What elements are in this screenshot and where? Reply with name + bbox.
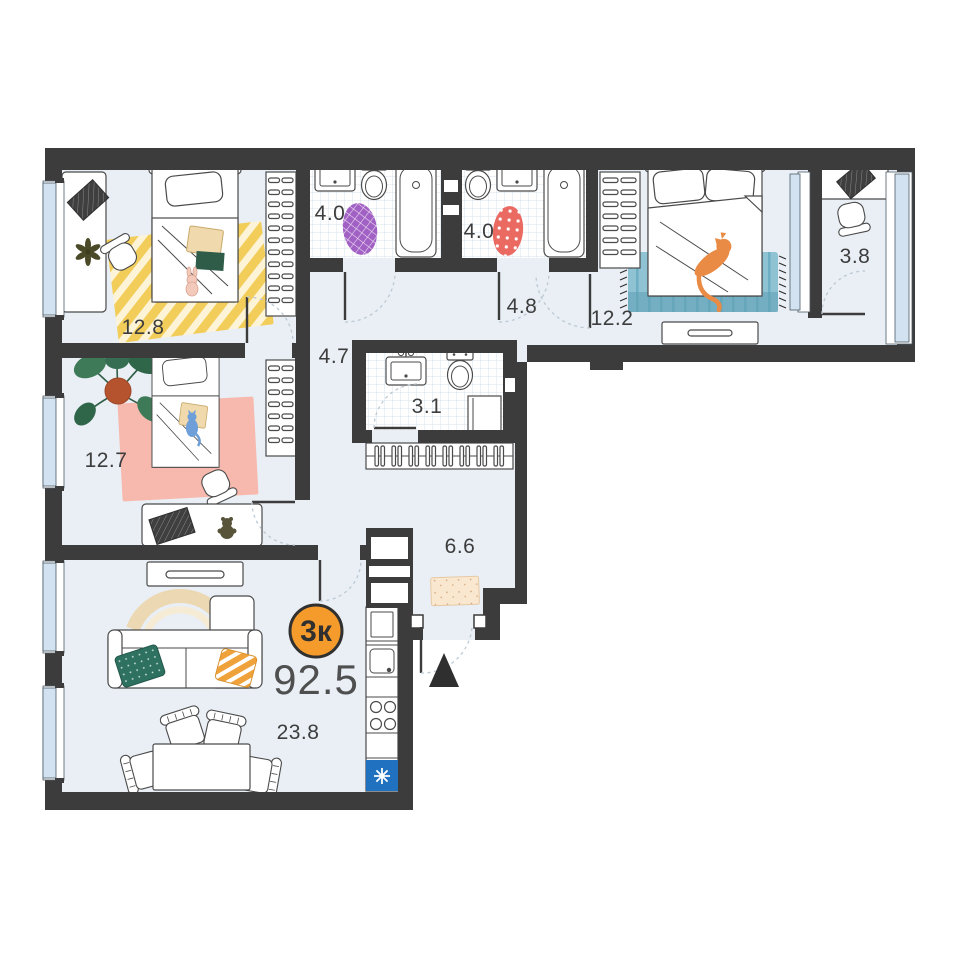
badge-label: 3к bbox=[300, 615, 333, 648]
area-label-bedroom-left: 12.7 bbox=[85, 449, 128, 472]
area-label-hallway-entrance: 6.6 bbox=[445, 535, 476, 558]
tv-stand bbox=[662, 322, 758, 344]
wardrobe bbox=[600, 172, 640, 268]
wardrobe bbox=[266, 360, 296, 456]
toilet-icon bbox=[447, 349, 473, 390]
area-label-bedroom-top: 12.8 bbox=[122, 316, 165, 339]
window bbox=[43, 558, 64, 656]
kitchen-counter bbox=[366, 607, 398, 791]
single-bed bbox=[149, 347, 221, 467]
washing-machine-icon bbox=[468, 396, 501, 432]
total-area-label: 92.5 bbox=[273, 656, 359, 703]
area-label-bathroom-small: 3.1 bbox=[412, 395, 443, 418]
wardrobe bbox=[266, 172, 296, 316]
window bbox=[43, 683, 64, 783]
balcony-window bbox=[886, 172, 912, 344]
doormat bbox=[431, 576, 480, 606]
window bbox=[43, 178, 64, 320]
area-label-living-kitchen: 23.8 bbox=[277, 721, 320, 744]
area-label-bedroom-right: 12.2 bbox=[591, 307, 634, 330]
area-label-balcony: 3.8 bbox=[840, 245, 871, 268]
tv-console bbox=[147, 562, 243, 586]
double-bed bbox=[645, 160, 765, 296]
apartment-type-badge: 3к bbox=[290, 605, 342, 657]
fridge-icon bbox=[366, 760, 398, 791]
area-label-hallway-top: 4.8 bbox=[507, 295, 538, 318]
floor-plan-svg: 12.8 4.0 4.0 4.8 12.2 3.8 4.7 3.1 12.7 6… bbox=[0, 0, 960, 960]
window bbox=[43, 393, 64, 491]
area-label-bathroom-right: 4.0 bbox=[464, 220, 495, 243]
dining-table bbox=[153, 744, 250, 790]
bathtub-icon bbox=[396, 161, 436, 257]
floor-plan: 12.8 4.0 4.0 4.8 12.2 3.8 4.7 3.1 12.7 6… bbox=[0, 0, 960, 960]
area-label-bathroom-left: 4.0 bbox=[315, 202, 346, 225]
entrance-arrow-icon bbox=[429, 653, 459, 687]
coat-rack bbox=[366, 443, 513, 469]
bathtub-icon bbox=[544, 161, 584, 257]
balcony-door-window bbox=[790, 172, 810, 312]
area-label-corridor: 4.7 bbox=[319, 345, 350, 368]
